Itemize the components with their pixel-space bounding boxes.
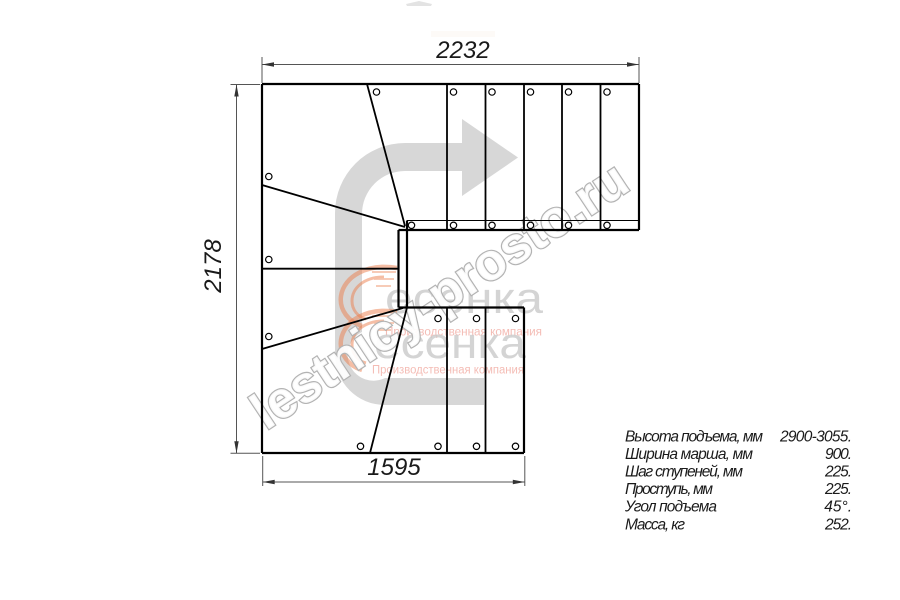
svg-text:1595: 1595: [367, 454, 421, 481]
svg-text:2232: 2232: [435, 37, 489, 64]
svg-text:900.: 900.: [825, 446, 852, 463]
svg-text:2178: 2178: [200, 239, 227, 294]
svg-text:45°.: 45°.: [824, 499, 852, 516]
svg-text:Масса, кг: Масса, кг: [625, 517, 685, 534]
svg-text:Проступь, мм: Проступь, мм: [625, 481, 713, 498]
svg-text:Ширина марша, мм: Ширина марша, мм: [625, 446, 753, 463]
svg-text:Угол подъема: Угол подъема: [624, 499, 717, 516]
svg-text:252.: 252.: [824, 517, 852, 534]
svg-text:Шаг ступеней, мм: Шаг ступеней, мм: [625, 464, 743, 481]
svg-text:Производственная компания: Производственная компания: [372, 365, 524, 377]
svg-text:2900-3055.: 2900-3055.: [779, 429, 852, 446]
svg-text:Высота подъема, мм: Высота подъема, мм: [625, 429, 763, 446]
svg-text:225.: 225.: [824, 481, 852, 498]
svg-text:225.: 225.: [824, 464, 852, 481]
